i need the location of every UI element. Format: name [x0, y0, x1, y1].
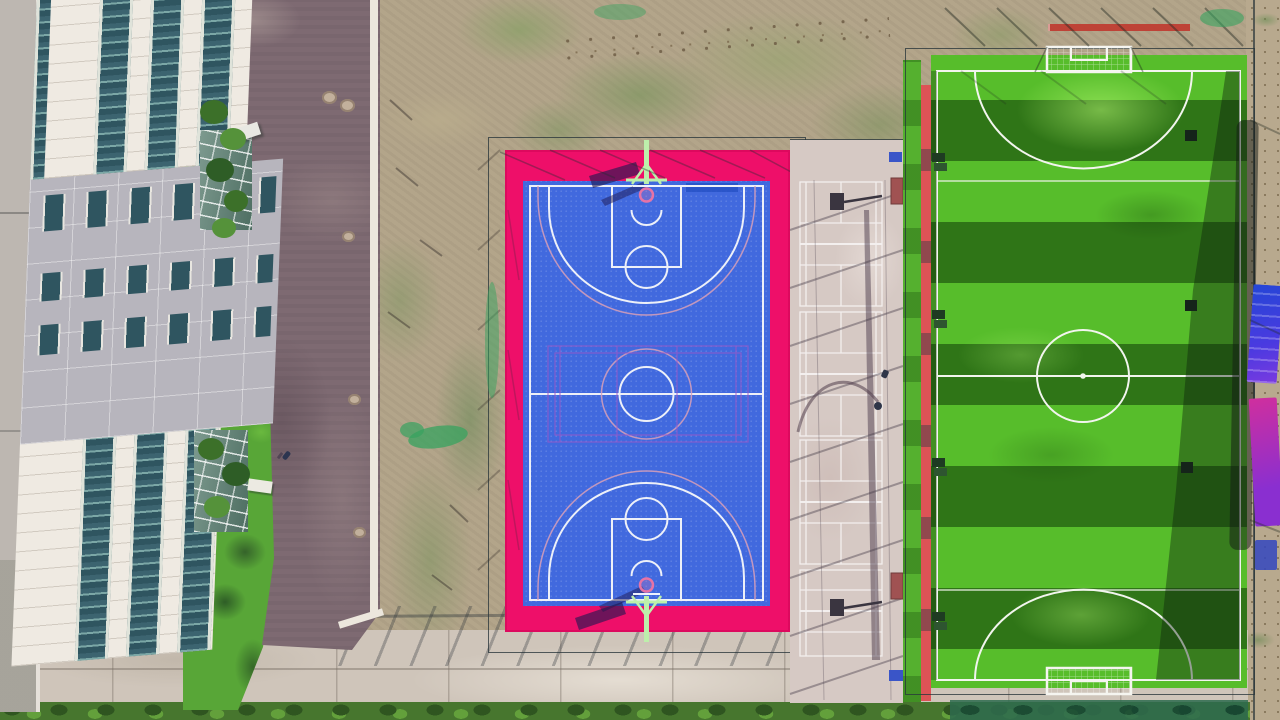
- scrub-post-shadows: [388, 100, 500, 590]
- green-netting: [400, 4, 1244, 452]
- worker-by-road: [881, 369, 890, 379]
- overlay-shadows: [0, 0, 1280, 720]
- fence-post-shadows-top: [945, 8, 1280, 532]
- aerial-photo: [0, 0, 1280, 720]
